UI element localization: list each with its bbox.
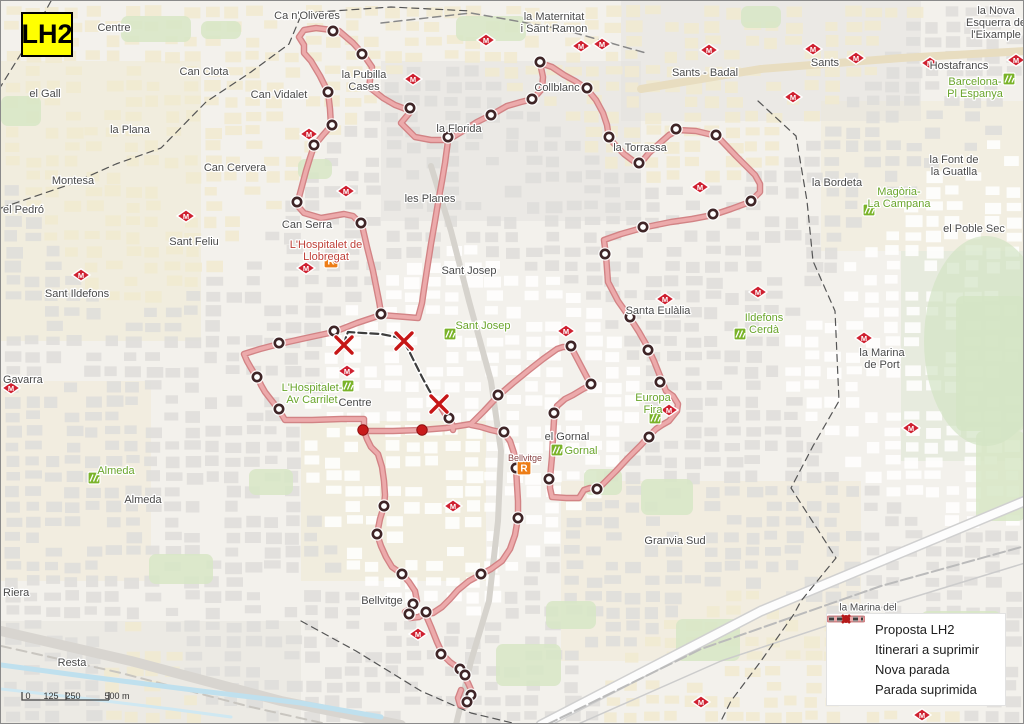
- city-block: [865, 247, 877, 257]
- city-block: [805, 711, 817, 720]
- city-block: [747, 261, 762, 272]
- city-block: [885, 516, 899, 526]
- city-block: [245, 605, 261, 613]
- city-block: [26, 233, 42, 241]
- city-block: [805, 276, 822, 286]
- city-block: [585, 156, 600, 165]
- city-block: [626, 381, 640, 392]
- city-block: [685, 457, 701, 469]
- bus-stop-marker: [635, 159, 643, 167]
- city-block: [486, 157, 499, 165]
- city-block: [764, 698, 778, 708]
- city-block: [227, 336, 240, 344]
- metro-icon-letter: M: [861, 334, 867, 343]
- city-block: [786, 650, 801, 659]
- city-block: [204, 217, 216, 229]
- city-block: [685, 141, 701, 152]
- city-block: [305, 187, 319, 198]
- city-block: [427, 277, 441, 287]
- city-block: [506, 248, 520, 259]
- city-block: [606, 441, 619, 453]
- city-block: [186, 590, 200, 599]
- city-block: [745, 245, 761, 256]
- city-block: [465, 517, 482, 527]
- bus-stop-marker: [409, 600, 417, 608]
- city-block: [747, 533, 760, 545]
- city-block: [727, 218, 741, 229]
- metro-icon-letter: M: [908, 424, 914, 433]
- city-block: [126, 546, 140, 555]
- city-block: [606, 532, 622, 540]
- city-block: [345, 276, 357, 286]
- place-label-line: Granvia Sud: [644, 535, 705, 547]
- city-block: [827, 368, 842, 380]
- city-block: [946, 36, 960, 48]
- city-block: [226, 365, 240, 374]
- city-block: [385, 8, 400, 19]
- place-label-line: de Port: [864, 359, 899, 371]
- city-block: [465, 97, 480, 109]
- city-block: [7, 426, 22, 438]
- city-block: [146, 201, 161, 211]
- place-label-line: L'Hospitalet-: [282, 382, 343, 394]
- city-block: [244, 457, 260, 467]
- city-block: [365, 486, 380, 496]
- city-block: [184, 81, 198, 91]
- city-block: [345, 486, 362, 496]
- city-block: [1007, 218, 1022, 229]
- city-block: [246, 516, 260, 528]
- city-block: [387, 516, 403, 526]
- city-block: [664, 336, 677, 346]
- city-block: [185, 96, 201, 105]
- city-block: [647, 233, 662, 242]
- city-block: [144, 308, 157, 317]
- city-block: [645, 545, 658, 557]
- place-label-line: Ca n'Oliveres: [274, 10, 340, 22]
- city-block: [326, 486, 342, 494]
- city-block: [285, 533, 299, 545]
- city-block: [365, 667, 378, 677]
- fgc-icon: [734, 328, 746, 340]
- city-block: [106, 336, 118, 347]
- city-block: [145, 263, 158, 274]
- city-block: [804, 380, 819, 389]
- city-block: [384, 622, 397, 631]
- city-block: [665, 575, 682, 584]
- city-block: [825, 426, 840, 436]
- city-block: [806, 683, 821, 694]
- city-block: [626, 20, 643, 32]
- city-block: [104, 110, 121, 120]
- city-block: [1007, 233, 1022, 242]
- city-block: [745, 440, 760, 450]
- city-block: [167, 127, 182, 136]
- city-block: [266, 112, 283, 122]
- place-label-line: Llobregat: [303, 251, 349, 263]
- legend-item-itinerari-suprimir: Itinerari a suprimir: [835, 640, 997, 659]
- city-block: [146, 442, 161, 453]
- route-badge-label: LH2: [22, 19, 73, 50]
- city-block: [465, 142, 479, 150]
- city-block: [407, 143, 421, 154]
- city-block: [725, 486, 740, 495]
- city-block: [347, 652, 362, 663]
- city-block: [524, 695, 538, 705]
- city-block: [584, 233, 597, 243]
- city-block: [686, 262, 700, 273]
- city-block: [365, 128, 378, 138]
- city-block: [365, 366, 377, 377]
- city-block: [805, 351, 819, 360]
- place-label-line: Collblanc: [534, 82, 580, 94]
- metro-icon-letter: M: [578, 42, 584, 51]
- city-block: [667, 247, 682, 257]
- city-block: [366, 158, 379, 167]
- city-block: [184, 533, 200, 543]
- city-block: [1005, 531, 1018, 541]
- city-block: [506, 6, 521, 14]
- bus-stop-marker: [605, 133, 613, 141]
- city-block: [286, 635, 302, 644]
- city-block: [386, 275, 399, 286]
- city-block: [227, 623, 242, 633]
- city-block: [227, 636, 241, 648]
- city-block: [525, 381, 538, 392]
- city-block: [884, 322, 898, 333]
- city-block: [706, 231, 720, 242]
- place-label: el Gall: [29, 88, 60, 100]
- city-block: [46, 607, 60, 617]
- city-block: [64, 201, 81, 212]
- city-block: [304, 546, 318, 557]
- bus-stop-marker: [550, 409, 558, 417]
- city-block: [246, 335, 262, 347]
- city-block: [786, 502, 798, 511]
- city-block: [546, 562, 559, 573]
- city-block: [505, 695, 520, 706]
- legend-label: Parada suprimida: [875, 682, 977, 697]
- city-block: [286, 322, 302, 333]
- city-block: [506, 128, 518, 140]
- city-block: [586, 170, 601, 179]
- city-block: [87, 246, 102, 257]
- city-block: [166, 546, 182, 555]
- city-block: [726, 606, 740, 615]
- city-block: [805, 157, 820, 167]
- city-block: [166, 622, 181, 632]
- city-block: [647, 125, 662, 134]
- city-block: [326, 470, 341, 480]
- city-block: [907, 156, 921, 166]
- city-block: [527, 486, 541, 498]
- metro-icon-letter: M: [183, 212, 189, 221]
- place-label-line: Almeda: [97, 465, 135, 477]
- bus-stop-marker: [583, 84, 591, 92]
- city-block: [926, 562, 939, 570]
- city-block: [785, 230, 802, 240]
- city-block: [267, 323, 281, 331]
- city-block: [824, 352, 841, 362]
- city-block: [525, 591, 540, 601]
- city-block: [286, 515, 299, 526]
- city-block: [306, 96, 320, 106]
- city-block: [105, 591, 119, 602]
- city-block: [67, 128, 84, 139]
- city-block: [785, 308, 800, 316]
- city-block: [65, 563, 81, 574]
- city-block: [286, 305, 298, 314]
- bus-stop-marker: [514, 514, 522, 522]
- city-block: [705, 96, 719, 108]
- city-block: [846, 353, 860, 363]
- city-block: [67, 471, 83, 482]
- city-block: [184, 367, 198, 377]
- city-block: [486, 712, 501, 724]
- city-block: [26, 158, 41, 168]
- city-block: [746, 427, 761, 436]
- bus-stop-marker: [293, 198, 301, 206]
- city-block: [784, 412, 797, 420]
- city-block: [65, 502, 80, 513]
- city-block: [447, 486, 463, 498]
- place-label: la Font dela Guatlla: [930, 154, 979, 178]
- place-label-line: el Pedró: [3, 204, 44, 216]
- city-block: [247, 276, 260, 285]
- city-block: [124, 425, 136, 434]
- city-block: [224, 113, 241, 124]
- city-block: [926, 578, 940, 587]
- city-block: [165, 532, 182, 540]
- bus-stop-marker: [672, 125, 680, 133]
- city-block: [905, 292, 918, 301]
- city-block: [84, 127, 97, 135]
- city-block: [866, 36, 879, 46]
- city-block: [926, 593, 940, 602]
- city-block: [86, 636, 99, 647]
- city-block: [466, 232, 480, 243]
- city-block: [746, 337, 763, 346]
- city-block: [345, 230, 361, 238]
- city-block: [225, 501, 237, 512]
- city-block: [105, 412, 118, 421]
- place-label: Bellvitge: [508, 453, 542, 463]
- city-block: [927, 216, 939, 227]
- city-block: [767, 337, 780, 346]
- city-block: [145, 323, 160, 332]
- city-block: [45, 518, 62, 526]
- place-label: la Marinade Port: [859, 347, 905, 371]
- city-block: [724, 50, 740, 59]
- city-block: [686, 290, 699, 302]
- city-block: [686, 276, 703, 285]
- city-block: [86, 501, 100, 510]
- city-block: [846, 382, 858, 391]
- city-block: [904, 458, 918, 469]
- city-block: [925, 128, 940, 139]
- city-block: [807, 397, 822, 408]
- place-label: Almeda: [97, 465, 135, 477]
- place-label-line: el Gornal: [545, 431, 590, 443]
- city-block: [384, 201, 401, 211]
- place-label: les Planes: [405, 193, 456, 205]
- place-label: Santa Eulàlia: [626, 305, 692, 317]
- place-label: Can Clota: [180, 66, 230, 78]
- place-label-line: Centre: [97, 22, 130, 34]
- city-block: [987, 66, 1003, 76]
- city-block: [246, 636, 262, 647]
- city-block: [407, 263, 422, 275]
- city-block: [306, 36, 322, 45]
- city-block: [887, 471, 901, 480]
- city-block: [804, 636, 820, 648]
- city-block: [844, 292, 858, 301]
- city-block: [327, 683, 343, 693]
- city-block: [846, 397, 859, 408]
- city-block: [426, 561, 443, 571]
- city-block: [246, 67, 260, 79]
- city-block: [745, 111, 758, 122]
- city-block: [666, 187, 683, 195]
- place-label: Gavarra: [3, 374, 44, 386]
- city-block: [85, 561, 97, 570]
- city-block: [927, 247, 944, 259]
- city-block: [725, 262, 738, 272]
- city-block: [487, 216, 501, 226]
- metro-icon-letter: M: [790, 93, 796, 102]
- city-block: [487, 290, 503, 300]
- city-block: [246, 125, 260, 134]
- city-block: [345, 201, 361, 209]
- city-block: [546, 290, 563, 298]
- city-block: [527, 351, 540, 360]
- metro-icon-letter: M: [410, 75, 416, 84]
- city-block: [526, 322, 542, 332]
- city-block: [145, 51, 161, 63]
- city-block: [665, 593, 682, 605]
- city-block: [186, 652, 203, 661]
- city-block: [645, 188, 658, 200]
- city-block: [686, 398, 703, 410]
- city-block: [7, 275, 21, 284]
- city-block: [64, 383, 77, 393]
- city-block: [686, 51, 699, 60]
- city-block: [527, 202, 539, 214]
- city-block: [246, 667, 260, 677]
- city-block: [166, 368, 181, 378]
- city-block: [304, 637, 317, 648]
- city-block: [107, 395, 124, 406]
- city-block: [664, 711, 676, 721]
- city-block: [645, 6, 661, 15]
- place-label: Collblanc: [534, 82, 580, 94]
- city-block: [345, 98, 361, 107]
- city-block: [985, 126, 1002, 135]
- city-block: [544, 532, 560, 544]
- city-block: [767, 277, 782, 285]
- city-block: [346, 501, 360, 512]
- bus-stop-marker: [461, 671, 469, 679]
- city-block: [866, 111, 879, 123]
- city-block: [545, 260, 559, 271]
- city-block: [587, 276, 603, 286]
- city-block: [807, 665, 822, 676]
- city-block: [887, 261, 900, 270]
- city-block: [65, 455, 81, 463]
- place-label-line: la Bordeta: [812, 177, 863, 189]
- city-block: [567, 518, 582, 527]
- city-block: [6, 502, 20, 513]
- city-block: [805, 80, 819, 90]
- bus-stop-marker: [275, 339, 283, 347]
- city-block: [484, 472, 496, 481]
- city-block: [767, 502, 782, 511]
- city-block: [585, 217, 601, 225]
- bus-stop-marker: [712, 131, 720, 139]
- city-block: [884, 308, 899, 317]
- city-block: [184, 440, 200, 449]
- city-block: [566, 112, 581, 121]
- city-block: [485, 622, 501, 630]
- city-block: [124, 578, 139, 589]
- city-block: [64, 487, 79, 498]
- city-block: [165, 323, 182, 332]
- city-block: [607, 337, 622, 349]
- place-label-line: Bellvitge: [361, 595, 403, 607]
- city-block: [185, 545, 200, 555]
- city-block: [886, 336, 901, 345]
- city-block: [47, 246, 60, 256]
- city-block: [905, 365, 921, 376]
- city-block: [387, 486, 401, 496]
- city-block: [645, 113, 661, 124]
- city-block: [947, 590, 962, 599]
- city-block: [185, 263, 202, 272]
- park-area: [121, 16, 191, 42]
- city-block: [906, 245, 919, 256]
- city-block: [127, 608, 139, 620]
- city-block: [806, 141, 821, 151]
- route-badge: LH2: [21, 12, 73, 57]
- city-block: [225, 126, 242, 135]
- city-block: [125, 382, 139, 393]
- city-block: [427, 696, 442, 705]
- city-block: [746, 547, 759, 556]
- city-block: [165, 158, 179, 169]
- city-block: [225, 52, 241, 63]
- city-block: [85, 606, 97, 614]
- place-label-line: Bellvitge: [508, 453, 542, 463]
- city-block: [247, 262, 262, 270]
- place-label: Hostafrancs: [930, 60, 989, 72]
- city-block: [646, 171, 660, 183]
- city-block: [686, 201, 700, 211]
- city-block: [805, 337, 819, 348]
- city-block: [746, 517, 762, 527]
- city-block: [904, 96, 920, 106]
- city-block: [386, 636, 401, 647]
- city-block: [107, 51, 120, 62]
- city-block: [266, 201, 282, 209]
- city-block: [685, 113, 702, 122]
- city-block: [286, 562, 298, 573]
- city-block: [507, 411, 519, 420]
- city-block: [66, 112, 81, 121]
- city-block: [885, 441, 901, 449]
- city-block: [266, 620, 279, 629]
- city-block: [287, 458, 301, 470]
- bus-stop-marker: [406, 104, 414, 112]
